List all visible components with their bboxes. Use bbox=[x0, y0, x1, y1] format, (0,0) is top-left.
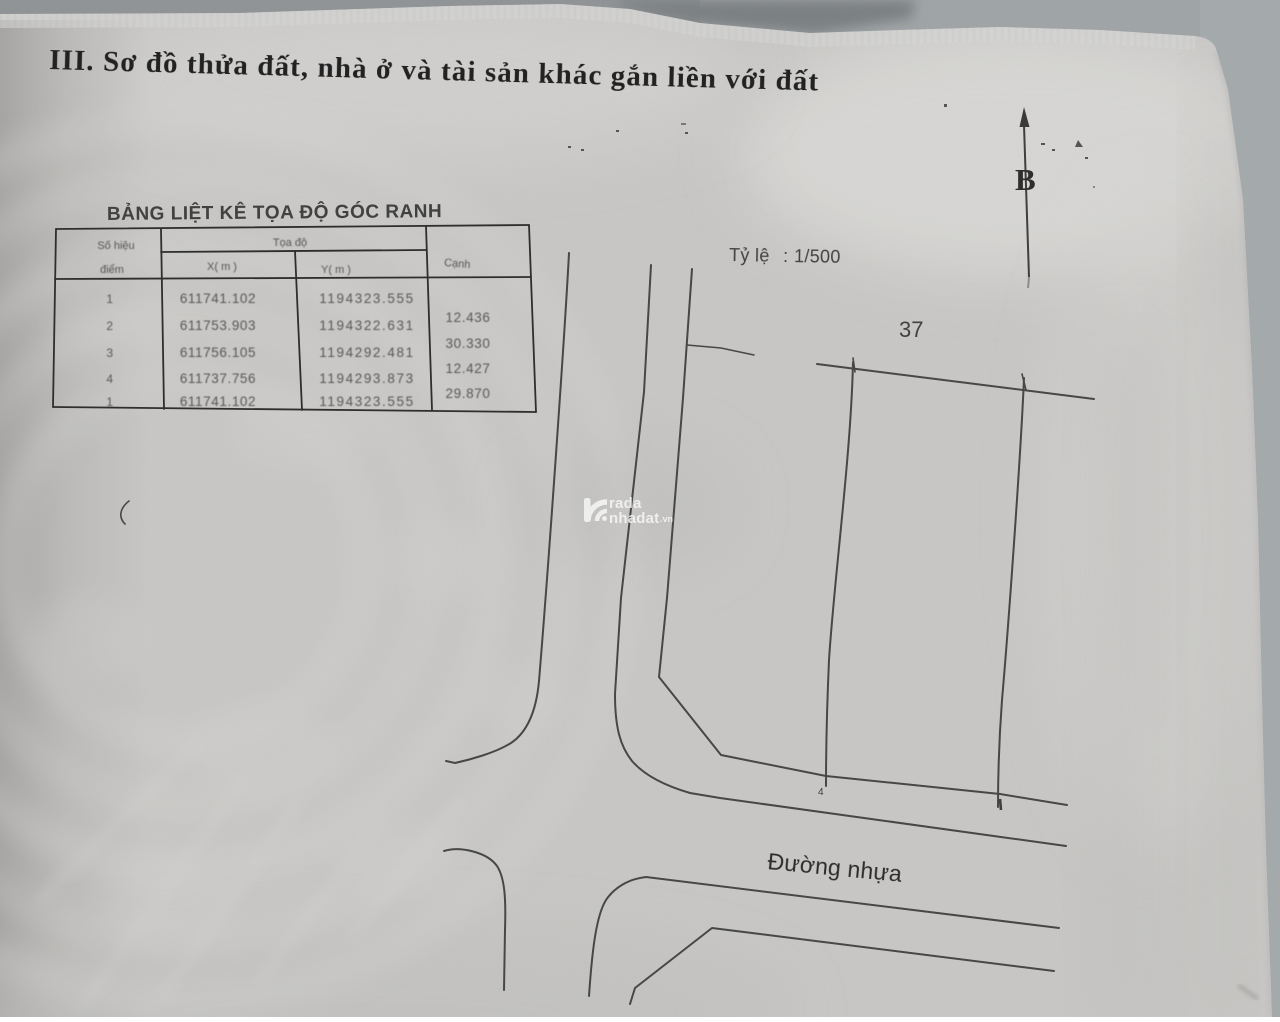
svg-text:12.427: 12.427 bbox=[446, 361, 491, 376]
svg-text:1194292.481: 1194292.481 bbox=[319, 345, 414, 360]
svg-text:Tỷ lệ:1/500: Tỷ lệ:1/500 bbox=[729, 245, 841, 267]
svg-text:1194293.873: 1194293.873 bbox=[319, 371, 414, 386]
svg-text:Cạnh: Cạnh bbox=[444, 257, 471, 271]
svg-text:1194323.555: 1194323.555 bbox=[319, 291, 414, 306]
svg-text:2: 2 bbox=[106, 319, 113, 333]
svg-text:611756.105: 611756.105 bbox=[180, 345, 256, 360]
svg-text:611753.903: 611753.903 bbox=[180, 318, 256, 333]
svg-text:BẢNG LIỆT KÊ TỌA ĐỘ GÓC RANH: BẢNG LIỆT KÊ TỌA ĐỘ GÓC RANH bbox=[107, 200, 442, 225]
svg-text:Y( m ): Y( m ) bbox=[321, 264, 351, 276]
svg-text:điểm: điểm bbox=[100, 264, 124, 276]
svg-text:X( m ): X( m ) bbox=[207, 261, 237, 273]
svg-text:29.870: 29.870 bbox=[446, 386, 491, 401]
svg-text:37: 37 bbox=[899, 317, 923, 342]
svg-text:611741.102: 611741.102 bbox=[180, 291, 256, 306]
svg-text:3: 3 bbox=[106, 346, 113, 360]
svg-text:611741.102: 611741.102 bbox=[180, 394, 256, 409]
svg-text:Tọa độ: Tọa độ bbox=[273, 237, 307, 249]
svg-text:1: 1 bbox=[106, 395, 113, 409]
svg-text:12.436: 12.436 bbox=[446, 310, 491, 325]
svg-text:611737.756: 611737.756 bbox=[180, 371, 256, 386]
svg-text:1194323.555: 1194323.555 bbox=[319, 394, 414, 409]
svg-text:Số hiệu: Số hiệu bbox=[97, 240, 134, 252]
svg-text:1194322.631: 1194322.631 bbox=[319, 318, 414, 333]
svg-text:nhadat: nhadat bbox=[609, 510, 659, 527]
svg-text:30.330: 30.330 bbox=[446, 336, 491, 351]
svg-text:B: B bbox=[1015, 162, 1036, 197]
svg-text:4: 4 bbox=[818, 787, 824, 798]
svg-text:1: 1 bbox=[106, 292, 113, 306]
svg-text:4: 4 bbox=[106, 372, 113, 386]
svg-text:.vn: .vn bbox=[660, 514, 673, 524]
